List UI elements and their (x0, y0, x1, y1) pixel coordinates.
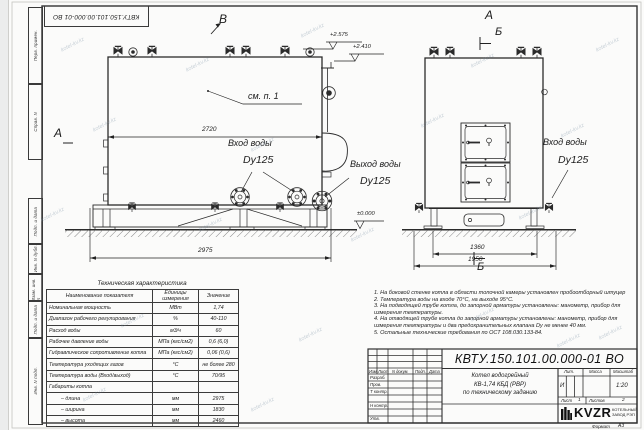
spec-cell: 40-110 (199, 314, 239, 325)
tb-col-izm: Изм. (369, 370, 378, 374)
product-name-line1: Котел водогрейный (442, 372, 558, 381)
dim-base-width: 1360 (470, 245, 484, 252)
tb-col-podp: Подп. (415, 370, 426, 374)
tb-col-dokum: N докум. (392, 370, 409, 374)
frame-side-cell: Справ. N (28, 83, 43, 160)
spec-cell: 2975 (199, 393, 239, 404)
title-block-doc-number: КВТУ.150.101.00.000-01 ВО (442, 350, 637, 368)
spec-table: Наименование показателяЕдиницы измерения… (46, 289, 239, 427)
dim-total-length: 2975 (198, 248, 212, 255)
inlet2-label: Вход воды (543, 138, 587, 147)
note-line: 1. На боковой стенке котла в области топ… (374, 290, 638, 297)
drawing-page: КВТУ.150.101.00.000-01 ВО В А А Б Б см. … (0, 0, 644, 430)
tb-format-label: Формат (592, 425, 610, 430)
top-stamp: КВТУ.150.101.00.000-01 ВО (44, 6, 149, 27)
note-line: измерения температуры и два предохраните… (374, 323, 638, 330)
tb-lit-value: И (560, 383, 564, 389)
tb-lit-label: Лит. (564, 370, 574, 374)
spec-cell: 0,06 (0,6) (199, 348, 239, 359)
spec-row: – длинамм2975 (47, 393, 239, 404)
spec-row: – ширинамм1830 (47, 404, 239, 415)
tb-col-list: Лист (378, 370, 389, 374)
tb-mass-label: Масса (589, 370, 602, 374)
spec-cell: °С (153, 359, 199, 370)
spec-cell: мм (153, 404, 199, 415)
inlet-flange-1 (231, 188, 250, 207)
outlet-label: Выход воды (350, 160, 401, 169)
section-label-b-bottom: Б (477, 262, 484, 273)
frame-side-cell: Подп. и дата (28, 198, 43, 245)
spec-row: Температура воды (Вход/выход)°С70/95 (47, 370, 239, 381)
view-label-a-right: А (485, 9, 493, 21)
tb-format-value: А3 (618, 424, 624, 429)
frame-side-label: Перв. примен. (33, 30, 38, 61)
product-name: Котел водогрейный КВ-1,74 КБД (РВР) по т… (442, 372, 558, 398)
spec-cell: 1830 (199, 404, 239, 415)
tb-sheets-value: 2 (622, 399, 625, 404)
spec-row: Диапазон рабочего регулирования%40-110 (47, 314, 239, 325)
spec-cell: МВт (153, 303, 199, 314)
outlet-dn-label: Dy125 (360, 176, 390, 187)
spec-cell: мм (153, 393, 199, 404)
spec-cell: 1,74 (199, 303, 239, 314)
frame-side-label: Справ. N (33, 112, 38, 132)
spec-table-title: Техническая характеристика (46, 280, 238, 287)
elev-valves: +2.575 (330, 33, 348, 39)
inlet2-dn-label: Dy125 (558, 155, 588, 166)
frame-side-label: Взам. инв. N (31, 274, 41, 301)
tb-row-utv: Утв. (370, 417, 380, 421)
see-note-callout: см. п. 1 (248, 92, 279, 101)
tb-sheet-value: 1 (578, 399, 581, 404)
section-label-b-top: Б (495, 27, 502, 38)
kvzr-logo-subtitle: КОТЕЛЬНЫЙ ЗАВОД РЭП (612, 408, 637, 417)
kvzr-logo-sub-line2: ЗАВОД РЭП (612, 413, 637, 418)
spec-cell: не более 280 (199, 359, 239, 370)
kvzr-logo-icon (561, 407, 572, 420)
frame-side-label: Инв. N подл. (33, 367, 38, 395)
spec-cell (153, 382, 199, 393)
spec-header: Значение (199, 290, 239, 303)
note-line: 3. На подводящей трубе котла, до запорно… (374, 303, 638, 310)
spec-cell: 70/95 (199, 370, 239, 381)
spec-row: Габариты котла (47, 382, 239, 393)
spec-cell: Рабочее давление воды (47, 336, 153, 347)
tb-sheet-label: Лист (561, 399, 572, 403)
frame-side-cell: Перв. примен. (28, 7, 43, 85)
note-line: 5. Остальные технические требования по О… (374, 330, 638, 337)
spec-row: Гидравлическое сопротивление котлаМПа (к… (47, 348, 239, 359)
frame-side-cell: Подп. и дата (28, 300, 43, 339)
spec-cell (199, 382, 239, 393)
spec-cell: м3/ч (153, 325, 199, 336)
spec-cell: Номинальная мощность (47, 303, 153, 314)
boiler-side-view (65, 46, 357, 237)
spec-cell: % (153, 314, 199, 325)
tb-row-razrab: Разраб. (370, 376, 386, 380)
spec-row: Температура уходящих газов°Сне более 280 (47, 359, 239, 370)
spec-cell: Габариты котла (47, 382, 153, 393)
frame-side-label: Подп. и дата (33, 305, 38, 334)
spec-row: Расход водым3/ч60 (47, 325, 239, 336)
note-line: 4. На отводящей трубе котла до запорной … (374, 316, 638, 323)
spec-row: – высотамм2460 (47, 415, 239, 426)
spec-cell: Температура воды (Вход/выход) (47, 370, 153, 381)
inlet-label: Вход воды (228, 139, 272, 148)
frame-side-label: Подп. и дата (33, 207, 38, 236)
spec-cell: Диапазон рабочего регулирования (47, 314, 153, 325)
spec-row: Номинальная мощностьМВт1,74 (47, 303, 239, 314)
tb-sheets-label: Листов (589, 399, 605, 403)
frame-side-label: Инв. N дубл. (33, 245, 38, 272)
spec-table-block: Техническая характеристика Наименование … (46, 280, 238, 427)
spec-cell: Гидравлическое сопротивление котла (47, 348, 153, 359)
view-label-a-left: А (54, 127, 62, 139)
tb-row-prov: Пров. (370, 383, 381, 387)
furnace-door-upper (461, 123, 510, 162)
spec-cell: 2460 (199, 415, 239, 426)
tb-scale-label: Масштаб (613, 370, 633, 374)
spec-cell: мм (153, 415, 199, 426)
spec-cell: 0,6 (6,0) (199, 336, 239, 347)
view-label-v: В (219, 13, 227, 25)
frame-side-cell: Инв. N подл. (28, 337, 43, 425)
tb-scale-value: 1:20 (616, 383, 628, 389)
spec-row: Рабочее давление водыМПа (кгс/см2)0,6 (6… (47, 336, 239, 347)
spec-cell: МПа (кгс/см2) (153, 348, 199, 359)
frame-side-cell: Взам. инв. N (28, 273, 43, 302)
tb-col-data: Дата (429, 370, 440, 374)
frame-side-cell: Инв. N дубл. (28, 243, 43, 275)
inlet-flange-2 (288, 188, 307, 207)
spec-cell: Расход воды (47, 325, 153, 336)
spec-cell: – длина (47, 393, 153, 404)
product-name-line2: КВ-1,74 КБД (РВР) (442, 381, 558, 390)
spec-header: Единицы измерения (153, 290, 199, 303)
dim-total-width: 1950 (468, 257, 482, 264)
spec-header: Наименование показателя (47, 290, 153, 303)
technical-notes: 1. На боковой стенке котла в области топ… (374, 290, 638, 336)
spec-cell: – ширина (47, 404, 153, 415)
spec-cell: – высота (47, 415, 153, 426)
elev-flue: +2.410 (353, 45, 371, 51)
tb-row-nkontr: Н контр. (370, 404, 388, 408)
tb-row-tkontr: Т контр. (370, 390, 388, 394)
elev-zero: ±0.000 (357, 212, 375, 218)
product-name-line3: по техническому заданию (442, 389, 558, 398)
spec-cell: °С (153, 370, 199, 381)
spec-cell: 60 (199, 325, 239, 336)
kvzr-logo-text: KVZR (574, 405, 611, 420)
furnace-door-lower (461, 163, 510, 202)
spec-cell: МПа (кгс/см2) (153, 336, 199, 347)
spec-cell: Температура уходящих газов (47, 359, 153, 370)
inlet-dn-label: Dy125 (243, 155, 273, 166)
dim-body-length: 2720 (202, 127, 216, 134)
top-stamp-number: КВТУ.150.101.00.000-01 ВО (53, 13, 139, 20)
